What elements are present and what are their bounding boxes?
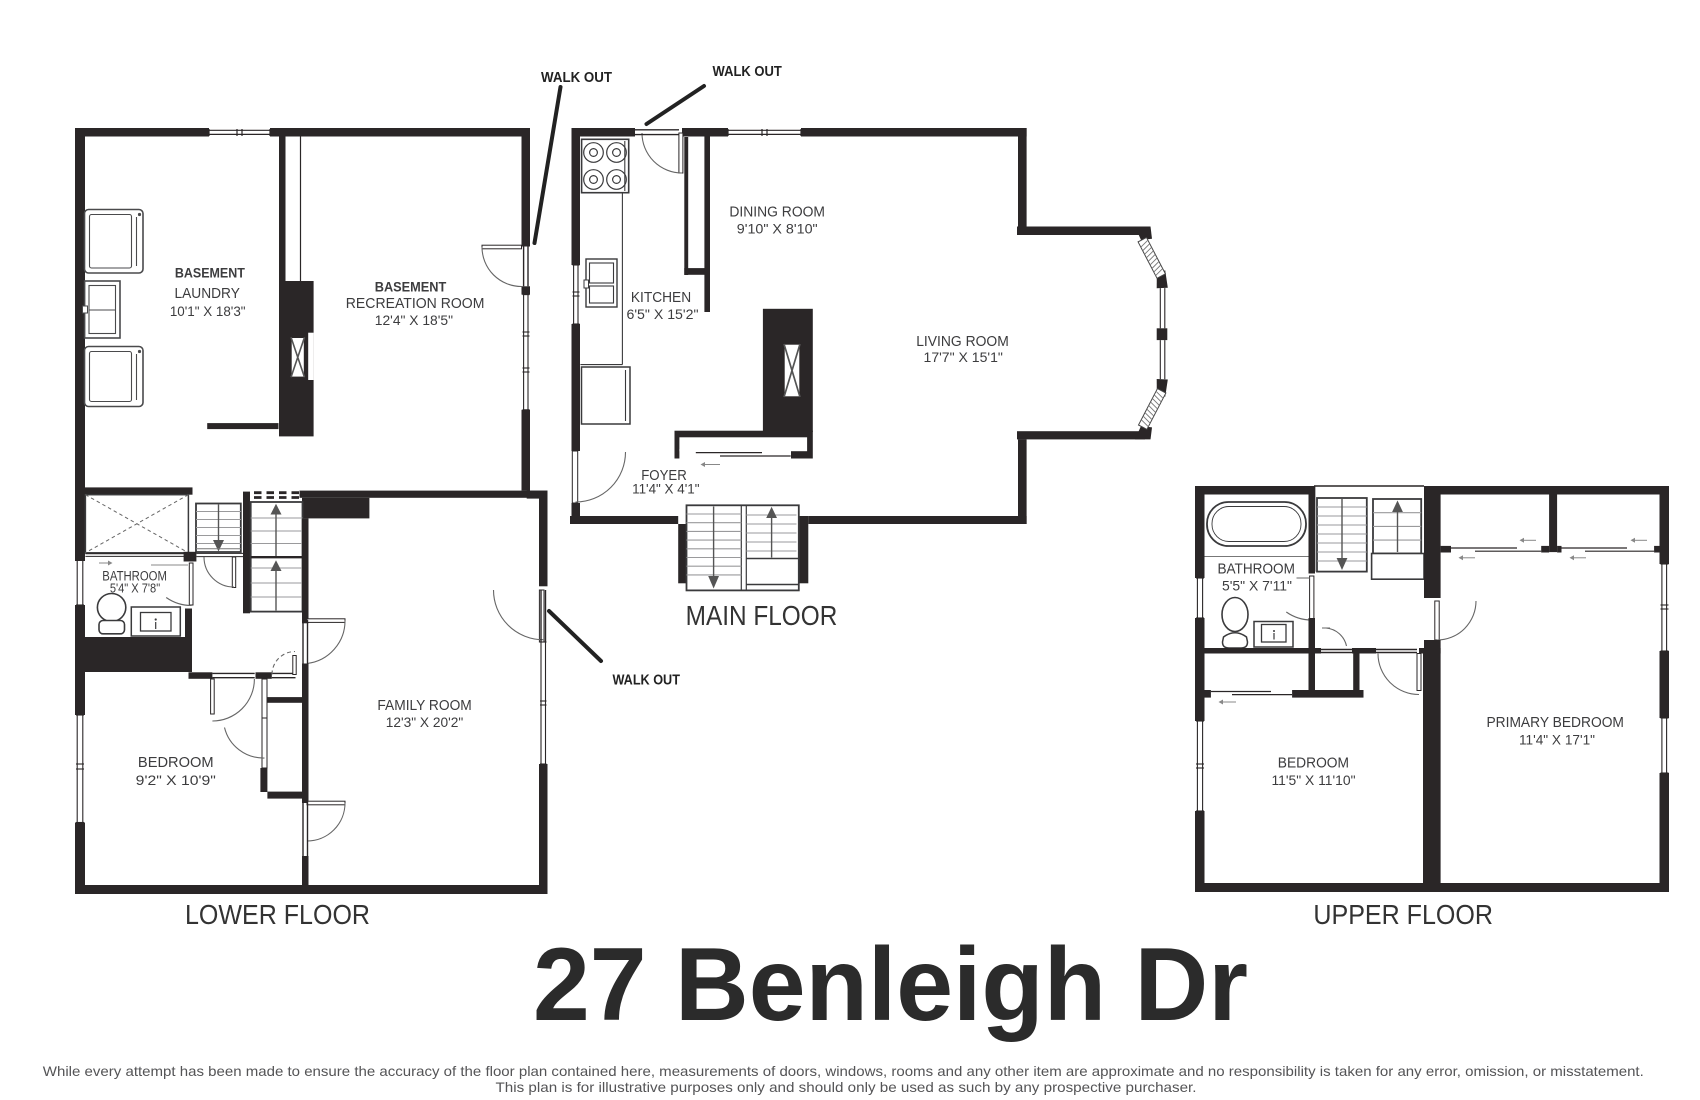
svg-text:11'5" X 11'10": 11'5" X 11'10" [1271, 772, 1355, 788]
svg-text:17'7" X 15'1": 17'7" X 15'1" [924, 349, 1003, 365]
svg-text:11'4" X 17'1": 11'4" X 17'1" [1519, 732, 1595, 748]
svg-text:LAUNDRY: LAUNDRY [175, 286, 241, 302]
svg-text:5'4" X 7'8": 5'4" X 7'8" [110, 581, 161, 596]
svg-text:BEDROOM: BEDROOM [138, 755, 214, 771]
svg-text:BATHROOM: BATHROOM [1217, 562, 1295, 578]
svg-text:BASEMENT: BASEMENT [175, 266, 245, 282]
svg-text:FAMILY ROOM: FAMILY ROOM [377, 698, 471, 714]
svg-text:This plan is for illustrative: This plan is for illustrative purposes o… [496, 1080, 1197, 1095]
svg-text:12'4" X 18'5": 12'4" X 18'5" [375, 312, 453, 328]
svg-text:12'3" X 20'2": 12'3" X 20'2" [386, 714, 464, 730]
svg-text:10'1" X 18'3": 10'1" X 18'3" [170, 303, 246, 319]
svg-text:9'10" X 8'10": 9'10" X 8'10" [737, 221, 818, 237]
svg-text:WALK OUT: WALK OUT [541, 70, 612, 86]
svg-text:While every attempt has been m: While every attempt has been made to ens… [43, 1064, 1644, 1079]
svg-text:WALK OUT: WALK OUT [612, 673, 680, 689]
svg-text:WALK OUT: WALK OUT [713, 64, 782, 80]
svg-text:BEDROOM: BEDROOM [1278, 756, 1349, 772]
svg-text:BASEMENT: BASEMENT [375, 279, 447, 295]
svg-text:9'2" X 10'9": 9'2" X 10'9" [136, 772, 216, 788]
svg-text:27 Benleigh Dr: 27 Benleigh Dr [533, 927, 1248, 1043]
svg-text:LIVING ROOM: LIVING ROOM [916, 334, 1009, 350]
svg-text:6'5" X 15'2": 6'5" X 15'2" [627, 306, 699, 322]
svg-text:KITCHEN: KITCHEN [631, 290, 691, 306]
svg-text:RECREATION ROOM: RECREATION ROOM [346, 296, 485, 312]
svg-text:11'4" X 4'1": 11'4" X 4'1" [632, 481, 699, 497]
svg-text:5'5" X 7'11": 5'5" X 7'11" [1222, 578, 1292, 594]
svg-text:LOWER FLOOR: LOWER FLOOR [185, 899, 370, 930]
svg-text:MAIN FLOOR: MAIN FLOOR [686, 600, 838, 631]
svg-text:PRIMARY BEDROOM: PRIMARY BEDROOM [1486, 715, 1624, 731]
svg-text:UPPER FLOOR: UPPER FLOOR [1313, 899, 1493, 930]
svg-text:DINING ROOM: DINING ROOM [729, 205, 825, 221]
